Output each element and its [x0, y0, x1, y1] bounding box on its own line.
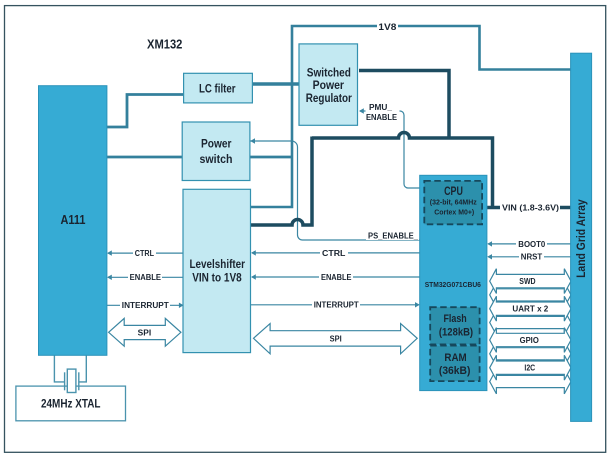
svg-text:1V8: 1V8	[378, 22, 396, 33]
svg-text:(36kB): (36kB)	[439, 365, 471, 377]
svg-text:VIN to 1V8: VIN to 1V8	[192, 270, 242, 284]
svg-text:I2C: I2C	[524, 364, 535, 373]
svg-text:Regulator: Regulator	[306, 91, 352, 105]
svg-text:SPI: SPI	[330, 334, 342, 343]
svg-text:NRST: NRST	[521, 253, 543, 262]
svg-text:A111: A111	[61, 213, 86, 227]
svg-text:ENABLE: ENABLE	[321, 273, 352, 282]
svg-text:SWD: SWD	[519, 277, 535, 286]
svg-text:Flash: Flash	[444, 313, 467, 325]
svg-text:PS_ENABLE_: PS_ENABLE_	[368, 232, 419, 241]
svg-text:CTRL: CTRL	[135, 249, 154, 258]
svg-text:ENABLE: ENABLE	[366, 113, 398, 122]
svg-text:GPIO: GPIO	[520, 336, 539, 345]
svg-text:(32-bit, 64MHz: (32-bit, 64MHz	[430, 199, 477, 206]
svg-text:UART x 2: UART x 2	[512, 305, 548, 314]
svg-text:CTRL: CTRL	[322, 249, 346, 258]
svg-text:CPU: CPU	[444, 186, 463, 198]
svg-text:Levelshifter: Levelshifter	[190, 257, 246, 271]
svg-text:Cortex M0+): Cortex M0+)	[434, 210, 474, 217]
svg-text:24MHz XTAL: 24MHz XTAL	[41, 396, 101, 410]
svg-text:PMU_: PMU_	[369, 103, 393, 112]
svg-text:VIN (1.8-3.6V): VIN (1.8-3.6V)	[502, 203, 559, 213]
svg-text:INTERRUPT: INTERRUPT	[122, 301, 169, 310]
svg-text:RAM: RAM	[444, 352, 466, 364]
svg-text:XM132: XM132	[147, 37, 182, 52]
svg-text:Land Grid Array: Land Grid Array	[576, 199, 588, 278]
svg-text:INTERRUPT: INTERRUPT	[314, 301, 359, 310]
svg-text:SPI: SPI	[138, 328, 152, 337]
svg-text:STM32G071CBU6: STM32G071CBU6	[425, 280, 481, 289]
svg-text:LC filter: LC filter	[199, 81, 236, 95]
svg-text:(128kB): (128kB)	[439, 327, 473, 339]
svg-text:ENABLE: ENABLE	[130, 273, 162, 282]
svg-text:BOOT0: BOOT0	[518, 240, 546, 249]
svg-text:switch: switch	[200, 152, 233, 166]
svg-text:Power: Power	[201, 137, 232, 151]
